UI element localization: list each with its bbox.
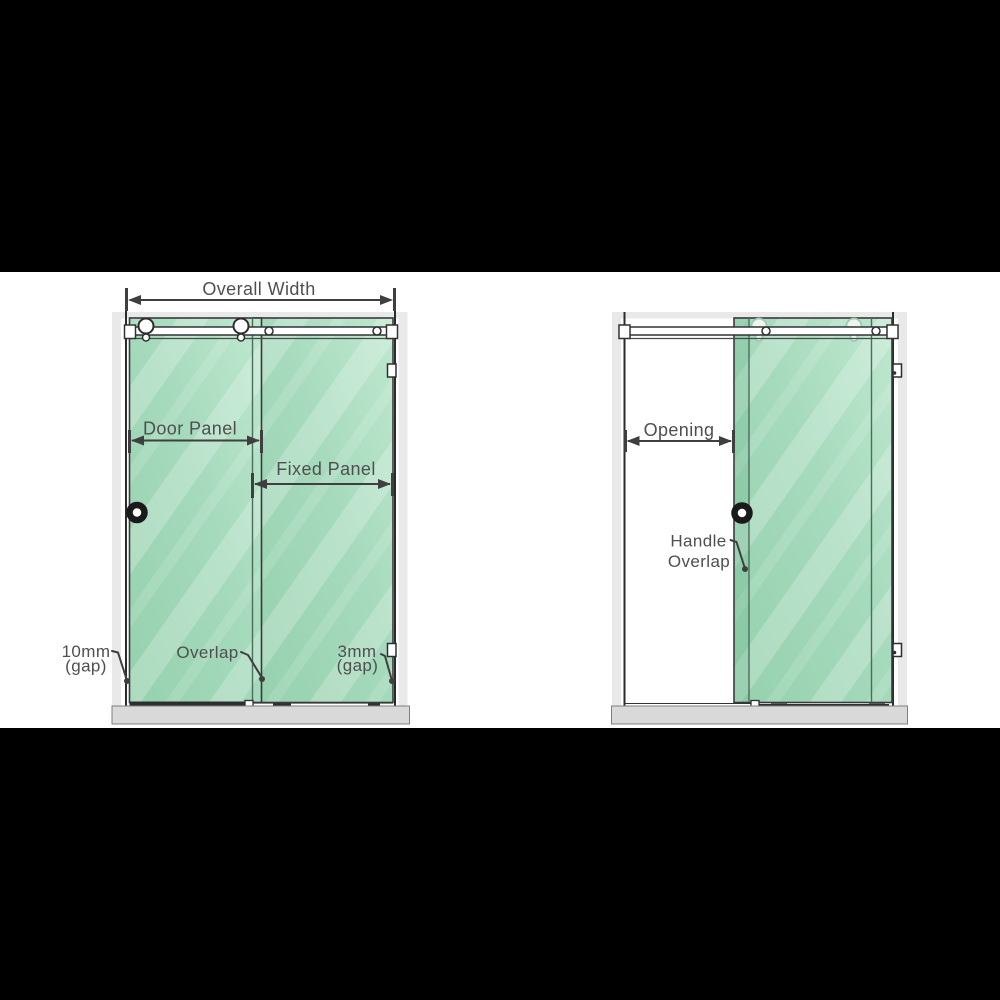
door-handle-icon bbox=[130, 505, 145, 520]
door-bottom-seal bbox=[130, 702, 246, 707]
callout-10mm-line2: (gap) bbox=[65, 657, 107, 676]
leader-dot bbox=[259, 676, 265, 682]
callout-3mm-line2: (gap) bbox=[337, 656, 379, 675]
stacked-panels-glass bbox=[734, 318, 892, 703]
rail-end-cap-left bbox=[125, 325, 136, 339]
letterbox-bottom bbox=[0, 728, 1000, 1000]
wall-bracket-icon bbox=[388, 644, 397, 657]
wall-strip-left bbox=[112, 312, 121, 706]
wall-bracket-icon bbox=[893, 364, 902, 377]
leader-dot bbox=[124, 678, 130, 684]
callout-handle-overlap-line1: Handle bbox=[670, 532, 726, 551]
rail-end-cap-right bbox=[387, 325, 398, 339]
wall-bracket-icon bbox=[388, 364, 397, 377]
fixed-clamp-icon bbox=[373, 327, 381, 335]
rail-end-cap-right bbox=[887, 325, 898, 339]
fixed-clamp-icon bbox=[872, 327, 880, 335]
dim-label-door-panel: Door Panel bbox=[143, 419, 237, 439]
wall-strip-right bbox=[399, 312, 408, 706]
shower-tray bbox=[112, 706, 410, 724]
dim-label-fixed-panel: Fixed Panel bbox=[276, 459, 375, 479]
shower-screen-diagram: Overall Width Door Panel Fixed Panel bbox=[0, 272, 1000, 728]
roller-icon bbox=[139, 319, 154, 334]
door-handle-icon bbox=[735, 506, 750, 521]
roller-icon bbox=[234, 319, 249, 334]
leader-dot bbox=[389, 678, 395, 684]
dim-label-overall-width: Overall Width bbox=[202, 279, 315, 299]
wall-bracket-icon bbox=[893, 644, 902, 657]
rail-end-cap-left bbox=[619, 325, 630, 339]
closed-door-diagram: Overall Width Door Panel Fixed Panel bbox=[62, 279, 410, 724]
dim-opening: Opening bbox=[626, 420, 734, 453]
product-diagram-image: Overall Width Door Panel Fixed Panel bbox=[0, 0, 1000, 1000]
letterbox-top bbox=[0, 0, 1000, 272]
dim-overall-width: Overall Width bbox=[127, 279, 395, 311]
fixed-clamp-icon bbox=[762, 327, 770, 335]
leader-dot bbox=[742, 566, 748, 572]
fixed-clamp-icon bbox=[265, 327, 273, 335]
callout-handle-overlap-line2: Overlap bbox=[668, 552, 730, 571]
roller-guide-icon bbox=[143, 334, 150, 341]
wall-strip-left bbox=[612, 312, 621, 706]
roller-guide-icon bbox=[238, 334, 245, 341]
open-door-diagram: Opening Handle Overlap bbox=[612, 312, 908, 724]
shower-tray bbox=[612, 706, 908, 724]
callout-overlap-label: Overlap bbox=[176, 643, 238, 662]
dim-label-opening: Opening bbox=[644, 420, 715, 440]
